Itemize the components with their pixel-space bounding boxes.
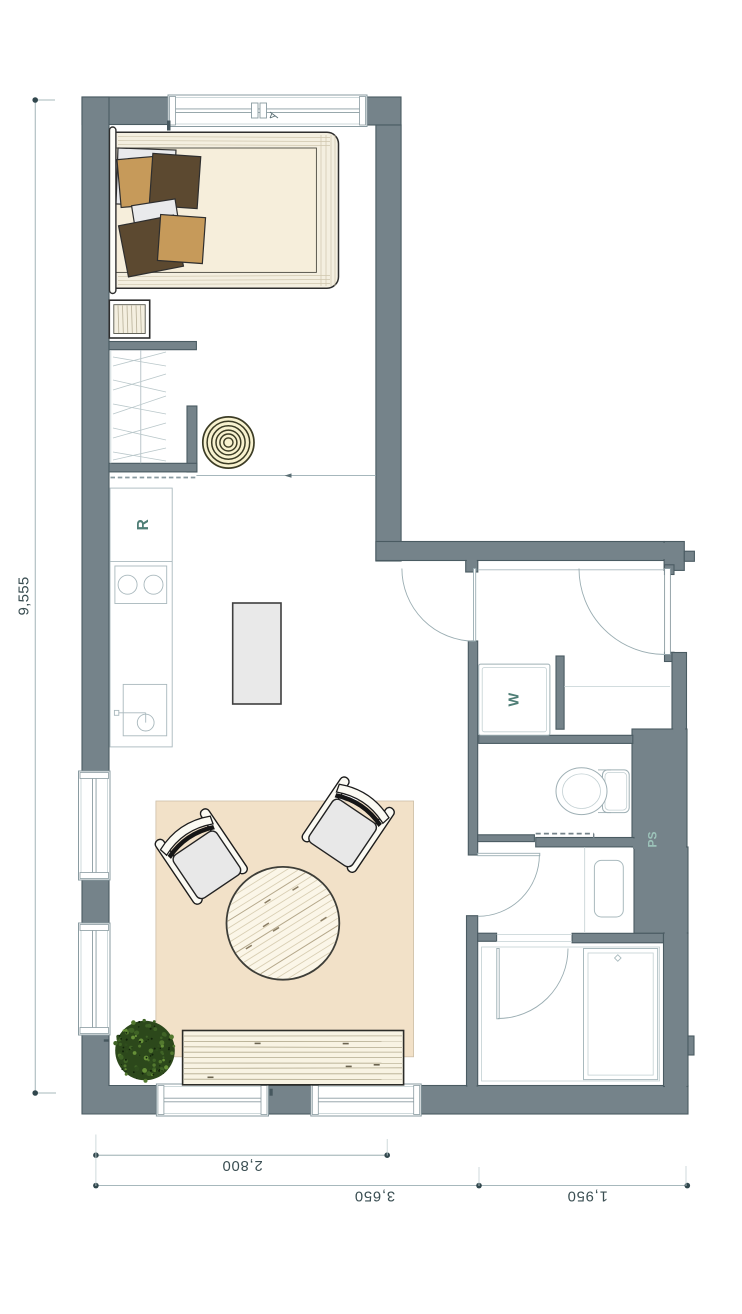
- svg-text:1,950: 1,950: [567, 1188, 608, 1204]
- svg-text:R: R: [135, 519, 152, 530]
- svg-text:2,800: 2,800: [222, 1157, 263, 1173]
- svg-text:9,555: 9,555: [15, 576, 32, 615]
- svg-text:PS: PS: [646, 831, 660, 847]
- svg-text:3,650: 3,650: [354, 1188, 395, 1204]
- svg-text:W: W: [506, 693, 522, 707]
